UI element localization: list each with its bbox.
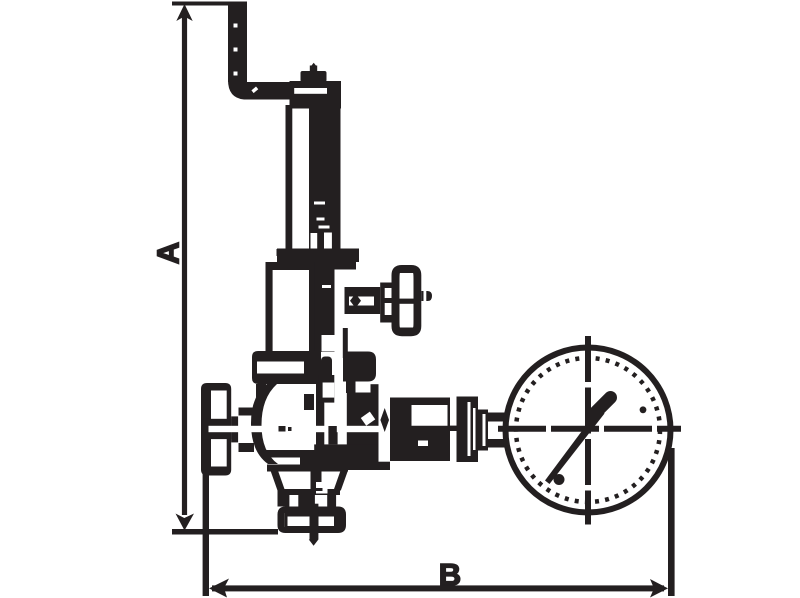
svg-text:B: B bbox=[439, 557, 461, 592]
svg-text:A: A bbox=[151, 242, 186, 264]
